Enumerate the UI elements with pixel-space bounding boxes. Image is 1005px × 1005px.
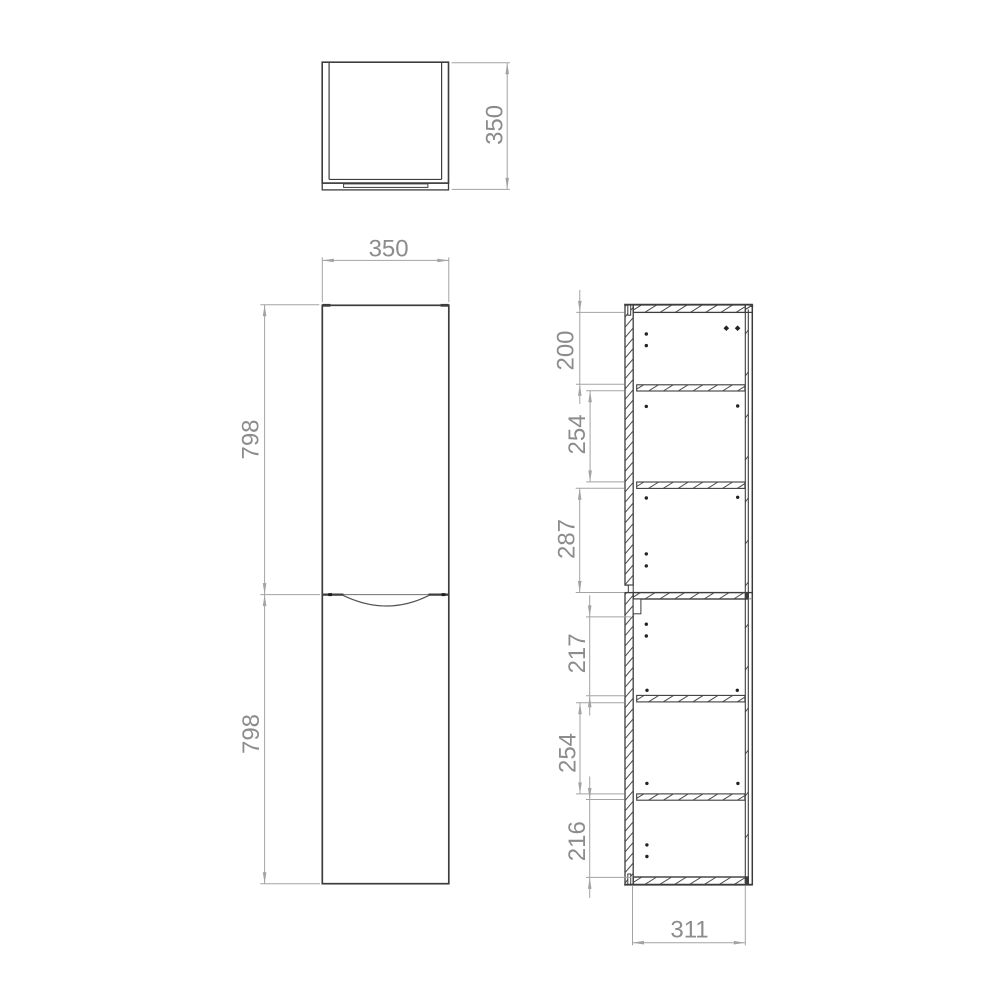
svg-text:350: 350: [481, 105, 508, 145]
svg-text:217: 217: [564, 633, 591, 673]
svg-text:311: 311: [670, 916, 708, 943]
svg-text:798: 798: [238, 419, 265, 459]
svg-text:254: 254: [564, 414, 591, 454]
svg-text:350: 350: [369, 236, 409, 263]
svg-text:200: 200: [553, 330, 580, 370]
svg-text:216: 216: [564, 821, 591, 861]
svg-text:798: 798: [238, 714, 265, 754]
svg-text:254: 254: [554, 733, 581, 773]
svg-text:287: 287: [554, 519, 581, 559]
